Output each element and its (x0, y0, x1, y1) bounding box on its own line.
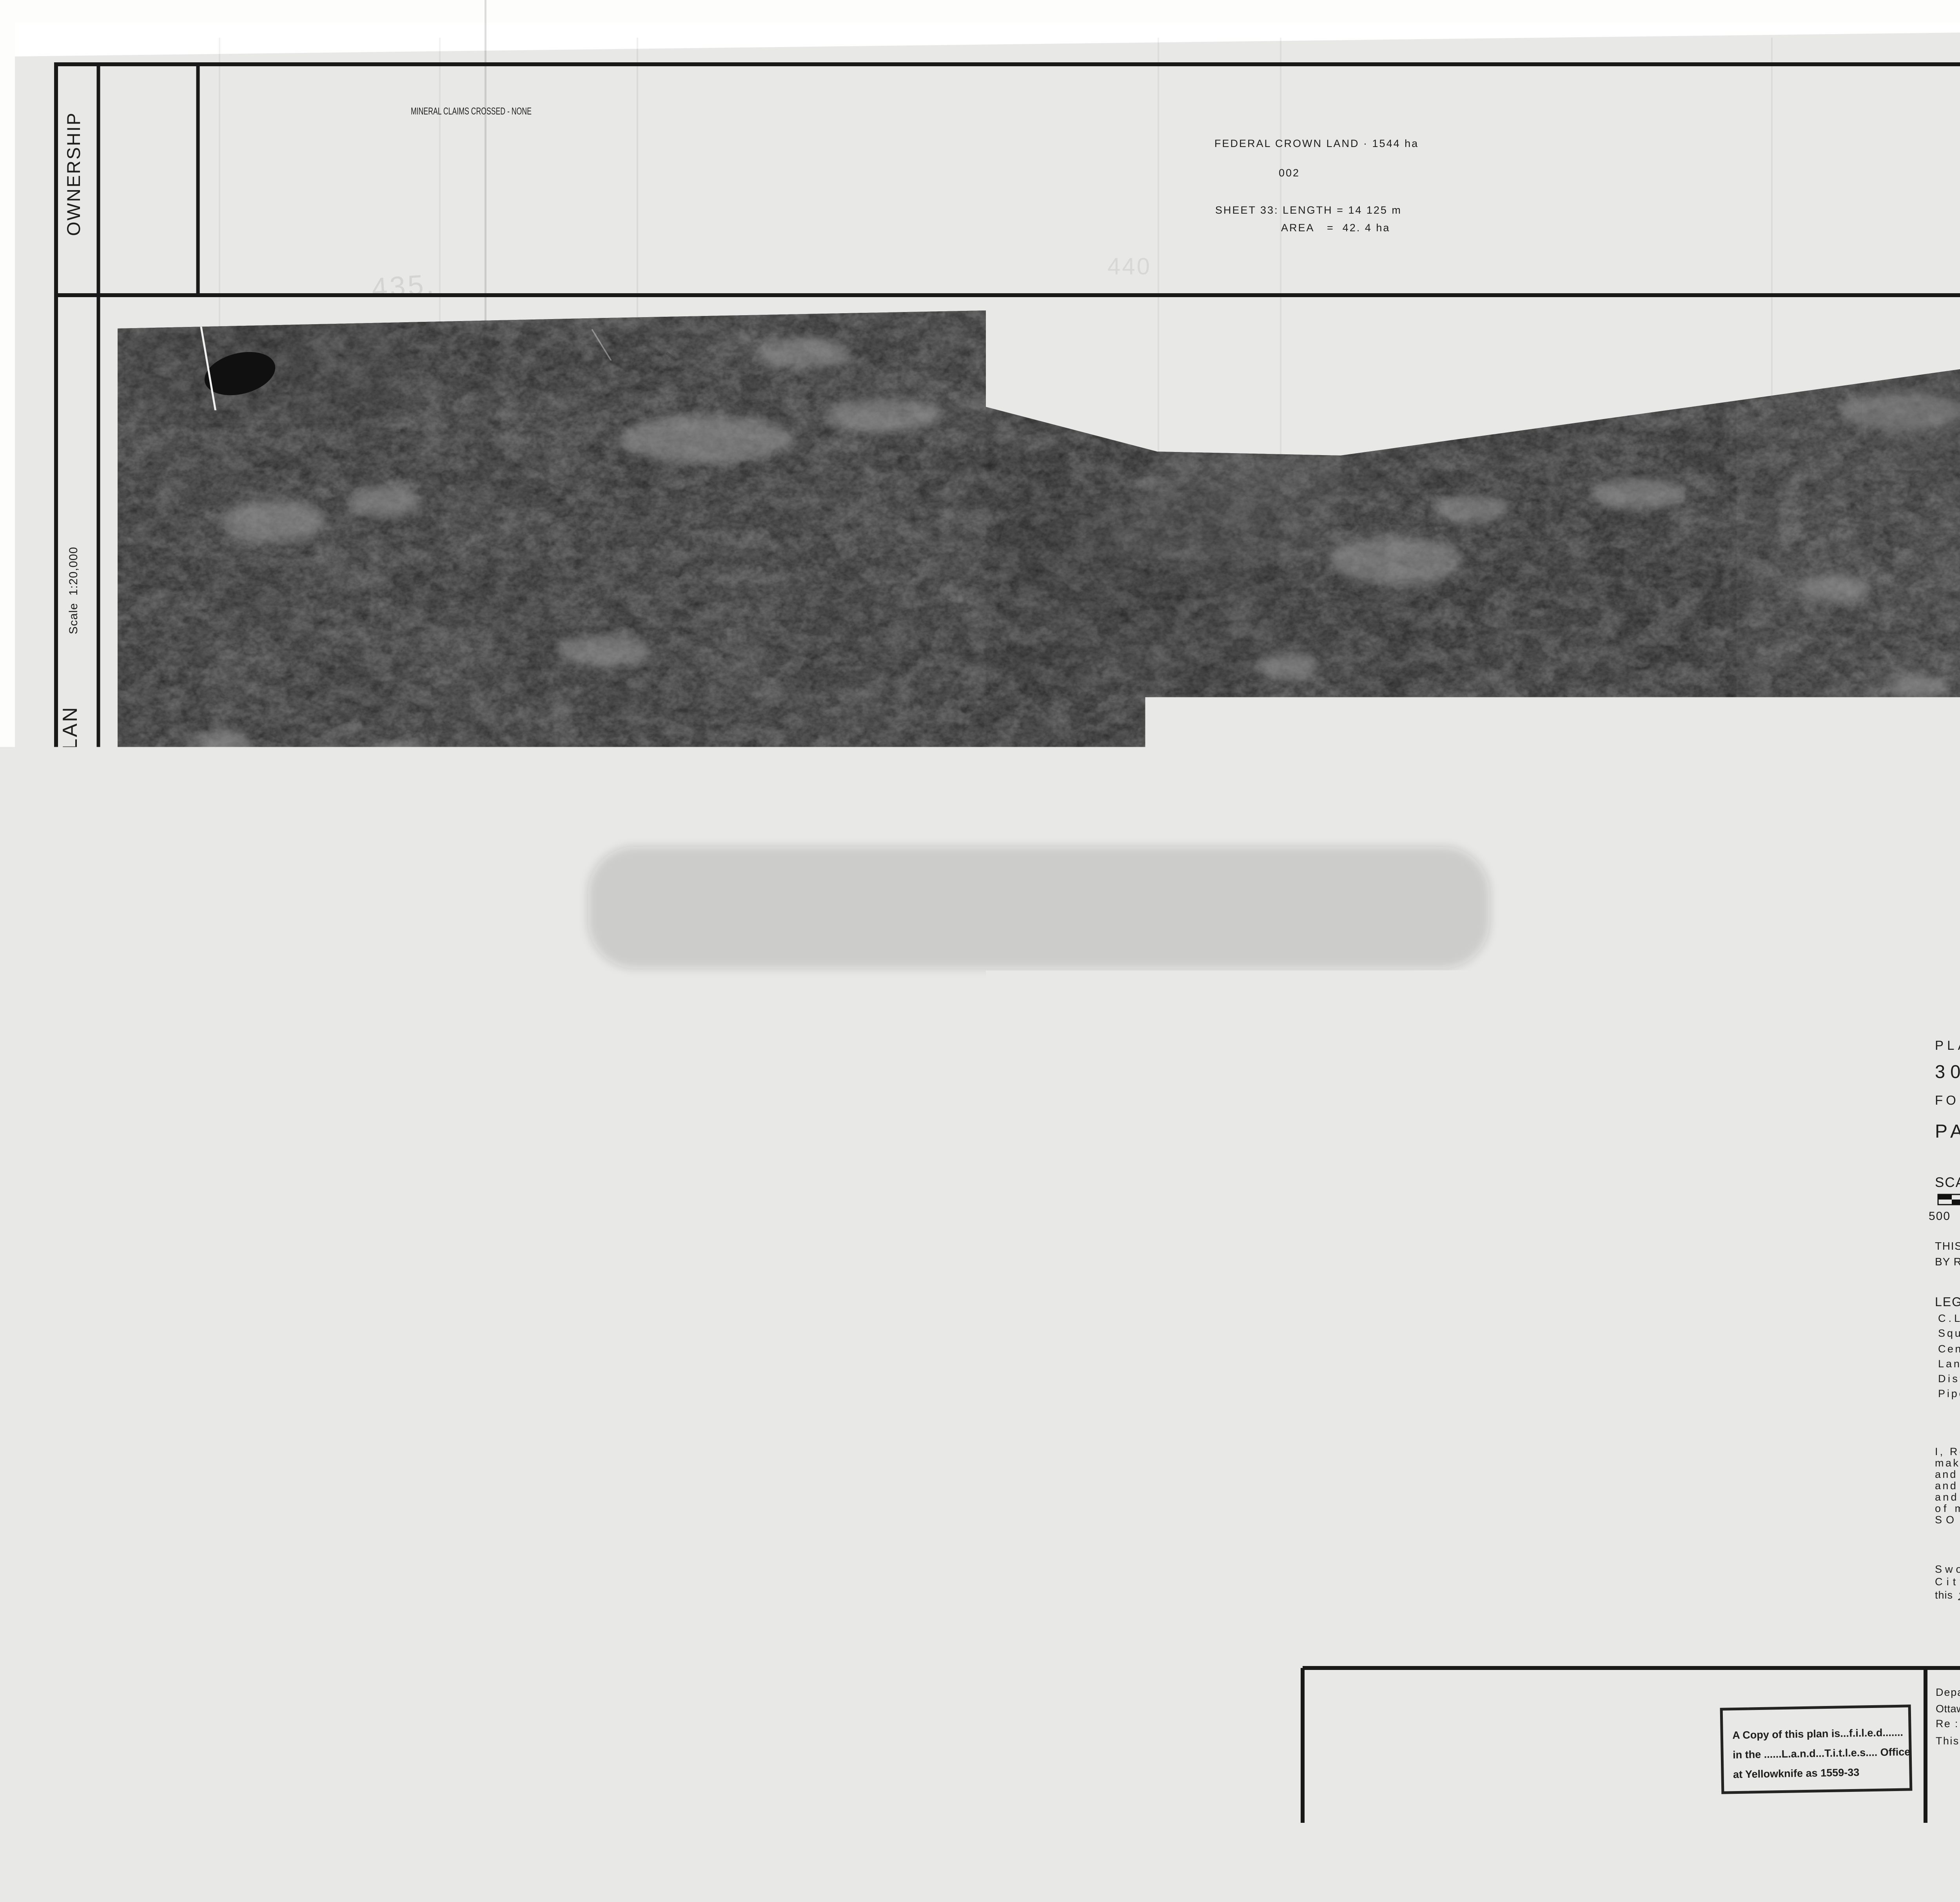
svg-text:SHEET 33: LENGTH = 14 125 m: SHEET 33: LENGTH = 14 125 m (1215, 204, 1402, 216)
svg-text:NORMAN: NORMAN (194, 1064, 245, 1076)
svg-text:ACCESS ROAD: ACCESS ROAD (1434, 858, 1506, 871)
svg-text:OWNERSHIP: OWNERSHIP (63, 112, 84, 236)
svg-text:MINERAL CLAIMS CROSSED - NONE: MINERAL CLAIMS CROSSED - NONE (411, 106, 532, 117)
svg-text:and Necessity No. OC - 35: and Necessity No. OC - 35 (971, 1768, 1112, 1780)
svg-text:440.0: 440.0 (1098, 662, 1149, 683)
svg-text:make oath and say that I have: make oath and say that I have in my own … (1935, 1457, 1960, 1469)
svg-text:Lands dealt with by this plan: Lands dealt with by this plan bounded th… (1938, 1358, 1960, 1370)
svg-text:B: B (105, 1329, 117, 1347)
svg-text:Re : Section 43 Canada Lands S: Re : Section 43 Canada Lands Surveys Act (1936, 1718, 1960, 1730)
svg-text:2607.4: 2607.4 (1811, 764, 1852, 777)
svg-text:Interprovincial Pipe Line (: Interprovincial Pipe Line ( NW ) LTD. (971, 1740, 1164, 1752)
svg-text:Great Bear Lake: Great Bear Lake (263, 1098, 330, 1108)
svg-text:WELLS: WELLS (200, 1076, 240, 1088)
svg-text:U: U (96, 1187, 107, 1204)
svg-text:440: 440 (1107, 253, 1151, 279)
svg-text:POSSIBLE PIPELINE: POSSIBLE PIPELINE (1448, 818, 1551, 831)
svg-text:35: 35 (246, 1361, 253, 1368)
svg-text:Pipeline right-of-way is 30 m: Pipeline right-of-way is 30 m wide unles… (1938, 1388, 1960, 1399)
svg-text:O: O (108, 1228, 120, 1245)
svg-text:FEDERAL CROWN LAND · 1544 ha: FEDERAL CROWN LAND · 1544 ha (1214, 138, 1419, 149)
svg-text:002: 002 (1279, 167, 1300, 179)
svg-text:DATE: DATE (1670, 1224, 1704, 1240)
svg-text:2060.7 (c): 2060.7 (c) (355, 597, 416, 610)
svg-text:CANADA LANDS SURVEYS RECORDS: CANADA LANDS SURVEYS RECORDS (14, 887, 27, 1117)
svg-text:Centre line of pipeline is sho: Centre line of pipeline is shown thus (1938, 1343, 1960, 1355)
svg-text:ALTA: ALTA (266, 1348, 319, 1367)
svg-text:LEGEND :: LEGEND : (1935, 1295, 1960, 1309)
svg-text:Holder of Certificate of Pu: Holder of Certificate of Public Convenie… (971, 1754, 1198, 1766)
svg-text:W: W (270, 1159, 289, 1180)
svg-text:T: T (313, 1189, 324, 1209)
svg-text:K: K (100, 1207, 112, 1225)
svg-text:and correctly executed the sur: and correctly executed the survey shown … (1935, 1480, 1960, 1492)
svg-text:68198: 68198 (30, 882, 54, 1100)
svg-text:445.0: 445.0 (1870, 687, 1921, 707)
svg-text:SCALE: SCALE (1935, 1175, 1960, 1190)
svg-text:R: R (225, 1241, 232, 1250)
svg-text:7281.0: 7281.0 (339, 624, 380, 637)
svg-text:and that the said plan and fie: and that the said plan and field notes a… (1935, 1491, 1960, 1503)
svg-text:N: N (116, 1248, 127, 1265)
svg-text:N: N (227, 1133, 240, 1154)
svg-text:PLAN: PLAN (59, 706, 82, 765)
svg-text:R: R (217, 1149, 224, 1159)
svg-text:Distances are in metres and de: Distances are in metres and decimals the… (1938, 1373, 1960, 1385)
svg-text:C: C (121, 1347, 132, 1364)
svg-text:Y: Y (93, 1169, 103, 1186)
svg-text:Great: Great (310, 1273, 332, 1283)
svg-text:30 m: 30 m (1548, 1086, 1561, 1110)
svg-text:Sworn before me at the: Sworn before me at the (1935, 1563, 1960, 1575)
svg-text:(WINTER): (WINTER) (1434, 875, 1487, 887)
svg-text:435.0: 435.0 (351, 529, 402, 550)
svg-text:55: 55 (240, 1347, 250, 1357)
svg-text:FORT: FORT (184, 1217, 215, 1229)
svg-text:RIGHT-OF-WAY DETAIL: RIGHT-OF-WAY DETAIL (1552, 1019, 1715, 1035)
svg-text:20: 20 (1958, 1590, 1960, 1603)
svg-text:Scale 1:20,000: Scale 1:20,000 (67, 547, 80, 635)
svg-text:CAMP - 200 m x 200 m: CAMP - 200 m x 200 m (1448, 833, 1550, 846)
svg-text:10: 10 (227, 1107, 238, 1118)
svg-text:(ALL SEASONS): (ALL SEASONS) (410, 650, 492, 663)
svg-text:R.O.W. Boundary: R.O.W. Boundary (1614, 1134, 1697, 1145)
svg-text:Slave Lake: Slave Lake (304, 1285, 348, 1295)
svg-text:Department of Indian Affairs a: Department of Indian Affairs and Norther… (1936, 1686, 1960, 1698)
svg-text:KEY PLAN n.t.s.: KEY PLAN n.t.s. (178, 1039, 251, 1051)
svg-text:Square Iron bars 13 mm by 45 c: Square Iron bars 13 mm by 45 cm or 30 cm… (1938, 1327, 1960, 1339)
svg-text:AREA = 42. 4 ha: AREA = 42. 4 ha (1281, 222, 1390, 234)
svg-text:P.I. 32-4: P.I. 32-4 (120, 557, 132, 606)
svg-text:PIPELINE: PIPELINE (1615, 1080, 1675, 1093)
svg-text:1620.2: 1620.2 (1506, 757, 1547, 770)
svg-text:40: 40 (241, 1251, 252, 1262)
svg-text:15 m: 15 m (1581, 1099, 1592, 1122)
svg-text:and the instructions of the Su: and the instructions of the Surveyor Gen… (1935, 1468, 1960, 1480)
svg-text:60°: 60° (171, 1296, 188, 1310)
svg-text:This survey and plan are satis: This survey and plan are satisfactory (1936, 1735, 1960, 1747)
svg-text:BY ROBERT E. MAYNE C.L.S.: BY ROBERT E. MAYNE C.L.S. (1935, 1256, 1960, 1268)
svg-text:Signing on behalf of: Signing on behalf of (971, 1726, 1076, 1738)
svg-text:R.O.W. Boundary: R.O.W. Boundary (1614, 1049, 1697, 1061)
svg-text:1: 1 (181, 1073, 185, 1081)
svg-text:Lake: Lake (174, 1359, 192, 1368)
svg-text:50: 50 (241, 1322, 252, 1332)
svg-text:ACCESS ROAD: ACCESS ROAD (410, 633, 490, 646)
svg-text:this: this (1935, 1589, 1953, 1601)
svg-text:at Yellowknife as 1559-33: at Yellowknife as 1559-33 (1733, 1766, 1860, 1780)
svg-text:435.: 435. (371, 269, 437, 304)
svg-text:REMOTE MAINTENANCE: REMOTE MAINTENANCE (581, 652, 697, 665)
svg-text:905.8: 905.8 (1305, 763, 1338, 776)
svg-text:SIMPSON: SIMPSON (173, 1229, 226, 1241)
svg-text:THIS SURVEY WAS EXECUTED DURIN: THIS SURVEY WAS EXECUTED DURING THE PERI… (1935, 1240, 1960, 1252)
svg-text:BASE - 100m x 100m: BASE - 100m x 100m (581, 668, 687, 681)
svg-text:Ottawa: Ottawa (1936, 1703, 1960, 1715)
svg-text:500: 500 (1929, 1210, 1951, 1223)
svg-text:Zama: Zama (172, 1350, 193, 1358)
svg-text:15 m: 15 m (1581, 1066, 1592, 1089)
svg-text:7: 7 (137, 1341, 140, 1348)
svg-text:C.L.S. posts found shown thus: C.L.S. posts found shown thus (1938, 1312, 1960, 1324)
svg-text:R: R (194, 1109, 202, 1120)
svg-text:Liard: Liard (188, 1241, 209, 1250)
